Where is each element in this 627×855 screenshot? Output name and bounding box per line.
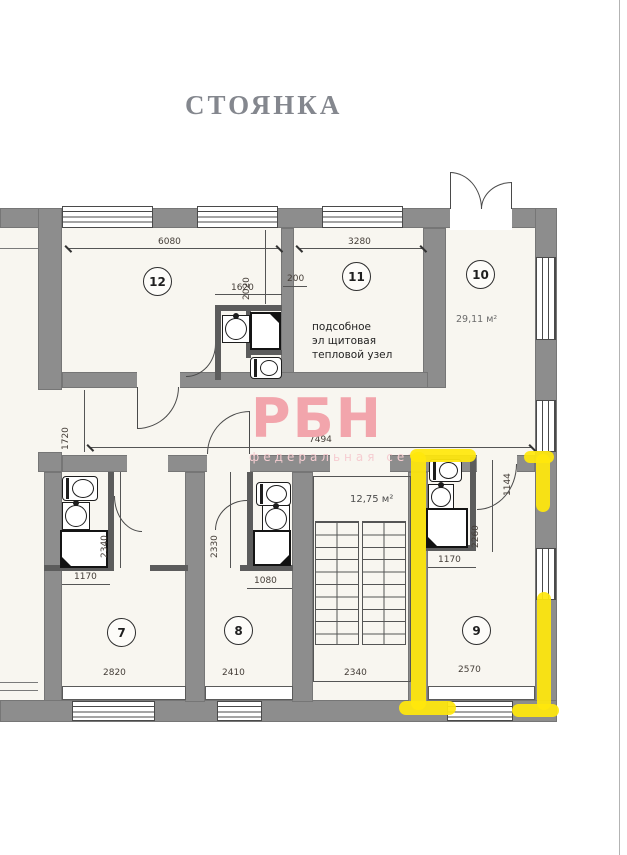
room-10-number: 10: [466, 260, 495, 289]
dim-room12-side: 2020: [242, 277, 252, 300]
window-right-2: [536, 400, 556, 452]
toilet-icon-room12: [250, 357, 282, 379]
room-12-number: 12: [143, 267, 172, 296]
bath12-wall-left: [215, 305, 221, 380]
dim-room8-width: 2410: [222, 668, 245, 678]
room-11-label: подсобное эл щитовая тепловой узел: [312, 320, 392, 362]
page-title: СТОЯНКА: [185, 90, 342, 121]
dim-room7-bath-h: 2340: [100, 535, 110, 558]
neighbour-sill-line-3: [0, 690, 38, 691]
dim-room12-width: 6080: [158, 237, 181, 247]
vent-shaft-room8: [253, 530, 291, 566]
dim-line-1080-r8: [247, 588, 292, 589]
dim-line-3280: [299, 248, 424, 249]
dim-line-6080: [68, 248, 280, 249]
dim-line-2020: [265, 230, 266, 304]
wall-room7-room8: [185, 472, 205, 702]
sill-room8: [205, 686, 293, 700]
sink-icon-room9: [428, 484, 454, 510]
sill-room9: [428, 686, 535, 700]
toilet-icon-room8: [256, 482, 291, 506]
dim-room9-bath-h: 2260: [471, 525, 481, 548]
sink-icon-room7: [62, 502, 90, 530]
wall-corridor-top: [62, 372, 428, 388]
room-11-label-line2: эл щитовая: [312, 334, 392, 348]
room-8-number: 8: [224, 616, 253, 645]
dim-line-1720: [84, 390, 85, 452]
room-11-number: 11: [342, 262, 371, 291]
floorplan-page: СТОЯНКА: [0, 0, 627, 855]
room-7-number: 7: [107, 618, 136, 647]
wall-left-upper: [38, 208, 62, 390]
vent-shaft-room9: [426, 508, 468, 548]
dim-line-200: [283, 286, 307, 287]
vent-shaft-room12: [250, 312, 281, 350]
sill-room7: [62, 686, 186, 700]
room-11-label-line3: тепловой узел: [312, 348, 392, 362]
wall-room8-stairs: [292, 472, 313, 702]
window-bottom-room8: [217, 701, 262, 721]
bath12-wall-horiz: [246, 350, 282, 355]
dim-line-2330-r8: [230, 472, 231, 568]
entrance-door-gap: [450, 206, 512, 230]
neighbour-sill-line-1: [0, 248, 38, 249]
lobby7-wall-bottom: [150, 565, 188, 571]
sink-icon-room12: [222, 315, 250, 343]
dim-line-1170-r9: [428, 567, 476, 568]
door-gap-room8: [207, 455, 250, 472]
window-top-2: [197, 206, 278, 228]
stairs-area-label: 12,75 м²: [350, 494, 393, 505]
wall-room12-room11: [281, 228, 294, 375]
dim-line-1170-r7: [62, 584, 110, 585]
window-bottom-room9: [447, 701, 513, 721]
toilet-icon-room9: [429, 459, 462, 482]
watermark-logo: РБН: [251, 390, 383, 448]
highlight-right-wall: [537, 592, 551, 710]
dim-room7-bath-w: 1170: [74, 572, 97, 582]
dim-room8-bath-h: 2330: [210, 535, 220, 558]
dim-room7-width: 2820: [103, 668, 126, 678]
entrance-door-leaf-right: [481, 182, 512, 209]
dim-room9-bath-w: 1170: [438, 555, 461, 565]
sink-icon-room8: [262, 505, 290, 533]
toilet-icon-room7: [62, 476, 98, 501]
room-11-label-line1: подсобное: [312, 320, 392, 334]
wall-left-lower: [44, 472, 62, 702]
door-gap-room12: [137, 372, 180, 388]
stairs-flight-right: [362, 521, 406, 645]
highlight-left-wall: [411, 452, 426, 710]
room-9-number: 9: [462, 616, 491, 645]
dim-room9-side: 1144: [503, 473, 513, 496]
dim-wall-offset: 200: [287, 274, 304, 284]
wall-left-mid: [38, 452, 62, 472]
dim-room8-bath-w: 1080: [254, 576, 277, 586]
watermark-tagline: федеральная сеть: [249, 450, 430, 464]
window-top-3: [322, 206, 403, 228]
dim-line-2260-r9: [492, 460, 493, 552]
highlight-bottom-right: [512, 704, 559, 717]
window-bottom-room7: [72, 701, 155, 721]
page-border-line: [619, 0, 620, 855]
window-right-1: [536, 257, 556, 340]
door-gap-room7: [127, 455, 168, 472]
room-10-area-label: 29,11 м²: [456, 314, 497, 325]
neighbour-sill-line-2: [0, 682, 38, 683]
stairs-flight-left: [315, 521, 359, 645]
highlight-bottom-left: [399, 701, 456, 715]
dim-room11-width: 3280: [348, 237, 371, 247]
dim-room9-width: 2570: [458, 665, 481, 675]
dim-corridor-width: 1720: [61, 427, 71, 450]
highlight-right-upper: [536, 454, 550, 512]
window-top-1: [62, 206, 153, 228]
entrance-door-leaf-left: [450, 172, 482, 209]
dim-line-2340-r7: [120, 472, 121, 568]
dim-stairs-width: 2340: [344, 668, 367, 678]
